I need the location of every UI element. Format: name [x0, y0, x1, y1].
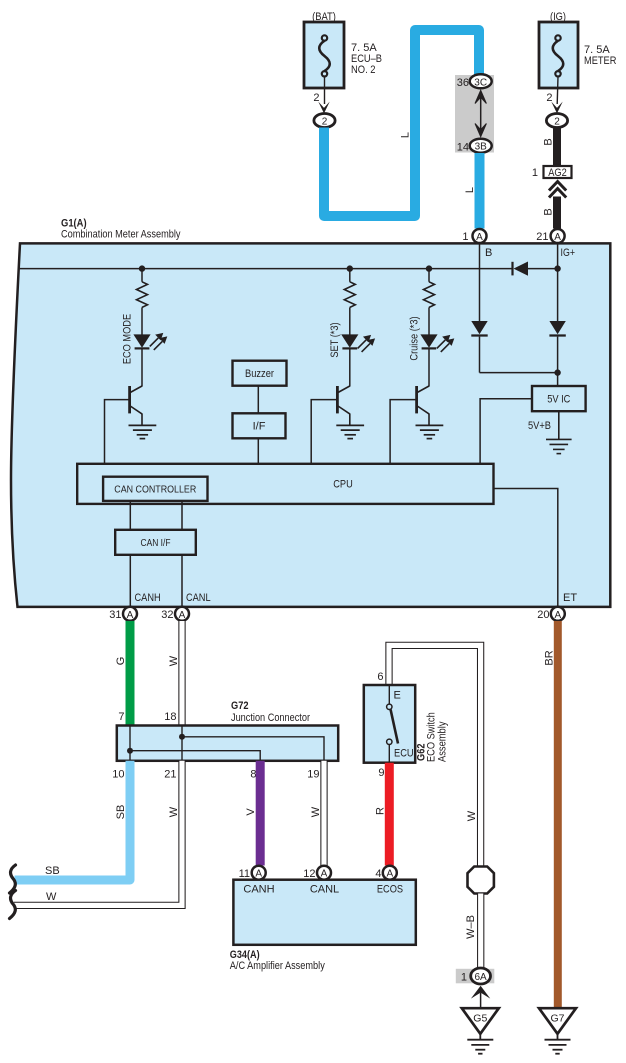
svg-text:1: 1: [461, 972, 467, 984]
svg-text:NO. 2: NO. 2: [351, 64, 376, 76]
svg-text:ECO MODE: ECO MODE: [122, 314, 134, 364]
svg-text:SB: SB: [45, 865, 60, 877]
svg-text:1: 1: [532, 167, 538, 179]
svg-text:G5: G5: [473, 1013, 487, 1025]
svg-text:B: B: [543, 208, 555, 215]
svg-text:6A: 6A: [474, 972, 487, 983]
svg-text:20: 20: [537, 609, 549, 621]
svg-text:3B: 3B: [475, 142, 488, 153]
svg-text:6: 6: [377, 671, 383, 683]
svg-text:2: 2: [313, 92, 319, 104]
svg-text:L: L: [464, 187, 476, 193]
svg-text:W–B: W–B: [465, 915, 477, 939]
svg-text:3C: 3C: [474, 77, 487, 88]
svg-text:A: A: [179, 610, 186, 621]
svg-text:W: W: [168, 806, 180, 817]
svg-text:CANL: CANL: [186, 592, 211, 604]
svg-text:21: 21: [164, 769, 176, 781]
svg-text:B: B: [485, 247, 492, 259]
svg-text:32: 32: [161, 609, 173, 621]
svg-text:W: W: [466, 810, 478, 821]
svg-text:Junction Connector: Junction Connector: [231, 712, 310, 724]
svg-text:2: 2: [546, 92, 552, 104]
svg-text:1: 1: [462, 231, 468, 243]
svg-text:Cruise (*3): Cruise (*3): [408, 316, 420, 360]
svg-text:AG2: AG2: [548, 167, 567, 179]
svg-text:36: 36: [457, 77, 469, 89]
svg-text:A: A: [476, 232, 483, 243]
svg-text:A: A: [321, 869, 328, 880]
svg-text:5V+B: 5V+B: [528, 420, 551, 432]
svg-text:SB: SB: [115, 805, 127, 820]
svg-text:2: 2: [554, 117, 560, 128]
svg-text:Assembly: Assembly: [437, 721, 449, 762]
svg-text:12: 12: [303, 868, 315, 880]
svg-text:R: R: [374, 807, 386, 815]
svg-text:CANL: CANL: [310, 884, 339, 896]
svg-text:G7: G7: [550, 1013, 564, 1025]
svg-text:I/F: I/F: [253, 421, 266, 433]
svg-text:A: A: [127, 610, 134, 621]
svg-text:B: B: [543, 138, 555, 145]
svg-text:CANH: CANH: [135, 592, 161, 604]
svg-text:11: 11: [239, 868, 250, 880]
svg-text:W: W: [46, 891, 57, 903]
svg-text:5V IC: 5V IC: [547, 394, 570, 406]
svg-text:10: 10: [112, 769, 124, 781]
svg-text:CPU: CPU: [333, 479, 353, 491]
svg-text:IG+: IG+: [561, 247, 576, 259]
svg-text:CAN CONTROLLER: CAN CONTROLLER: [114, 485, 196, 496]
svg-text:Buzzer: Buzzer: [245, 368, 274, 380]
svg-text:A: A: [255, 869, 262, 880]
svg-text:4: 4: [375, 868, 381, 880]
svg-text:ECU: ECU: [394, 748, 414, 760]
svg-text:BR: BR: [543, 650, 555, 665]
svg-text:W: W: [310, 806, 322, 817]
svg-text:ECOS: ECOS: [377, 884, 403, 896]
svg-text:A: A: [554, 610, 561, 621]
svg-text:G72: G72: [231, 700, 249, 712]
svg-text:G: G: [115, 657, 127, 666]
svg-text:A: A: [386, 869, 393, 880]
svg-text:CAN I/F: CAN I/F: [141, 538, 171, 549]
svg-text:A: A: [554, 232, 561, 243]
svg-text:CANH: CANH: [243, 884, 274, 896]
svg-text:7: 7: [118, 711, 124, 723]
svg-text:18: 18: [164, 711, 176, 723]
svg-text:A/C Amplifier Assembly: A/C Amplifier Assembly: [230, 960, 325, 972]
svg-text:V: V: [245, 808, 257, 816]
svg-text:ET: ET: [563, 592, 577, 604]
svg-text:E: E: [394, 690, 401, 702]
svg-text:31: 31: [109, 609, 121, 621]
svg-text:19: 19: [307, 769, 319, 781]
svg-text:SET (*3): SET (*3): [329, 322, 341, 357]
svg-text:21: 21: [536, 231, 548, 243]
svg-text:W: W: [168, 655, 180, 666]
svg-text:L: L: [400, 132, 412, 138]
svg-text:8: 8: [250, 769, 256, 781]
svg-text:Combination Meter Assembly: Combination Meter Assembly: [61, 228, 181, 240]
svg-text:14: 14: [457, 142, 469, 154]
svg-text:9: 9: [378, 767, 384, 779]
svg-text:2: 2: [322, 117, 328, 128]
svg-text:METER: METER: [584, 55, 616, 67]
